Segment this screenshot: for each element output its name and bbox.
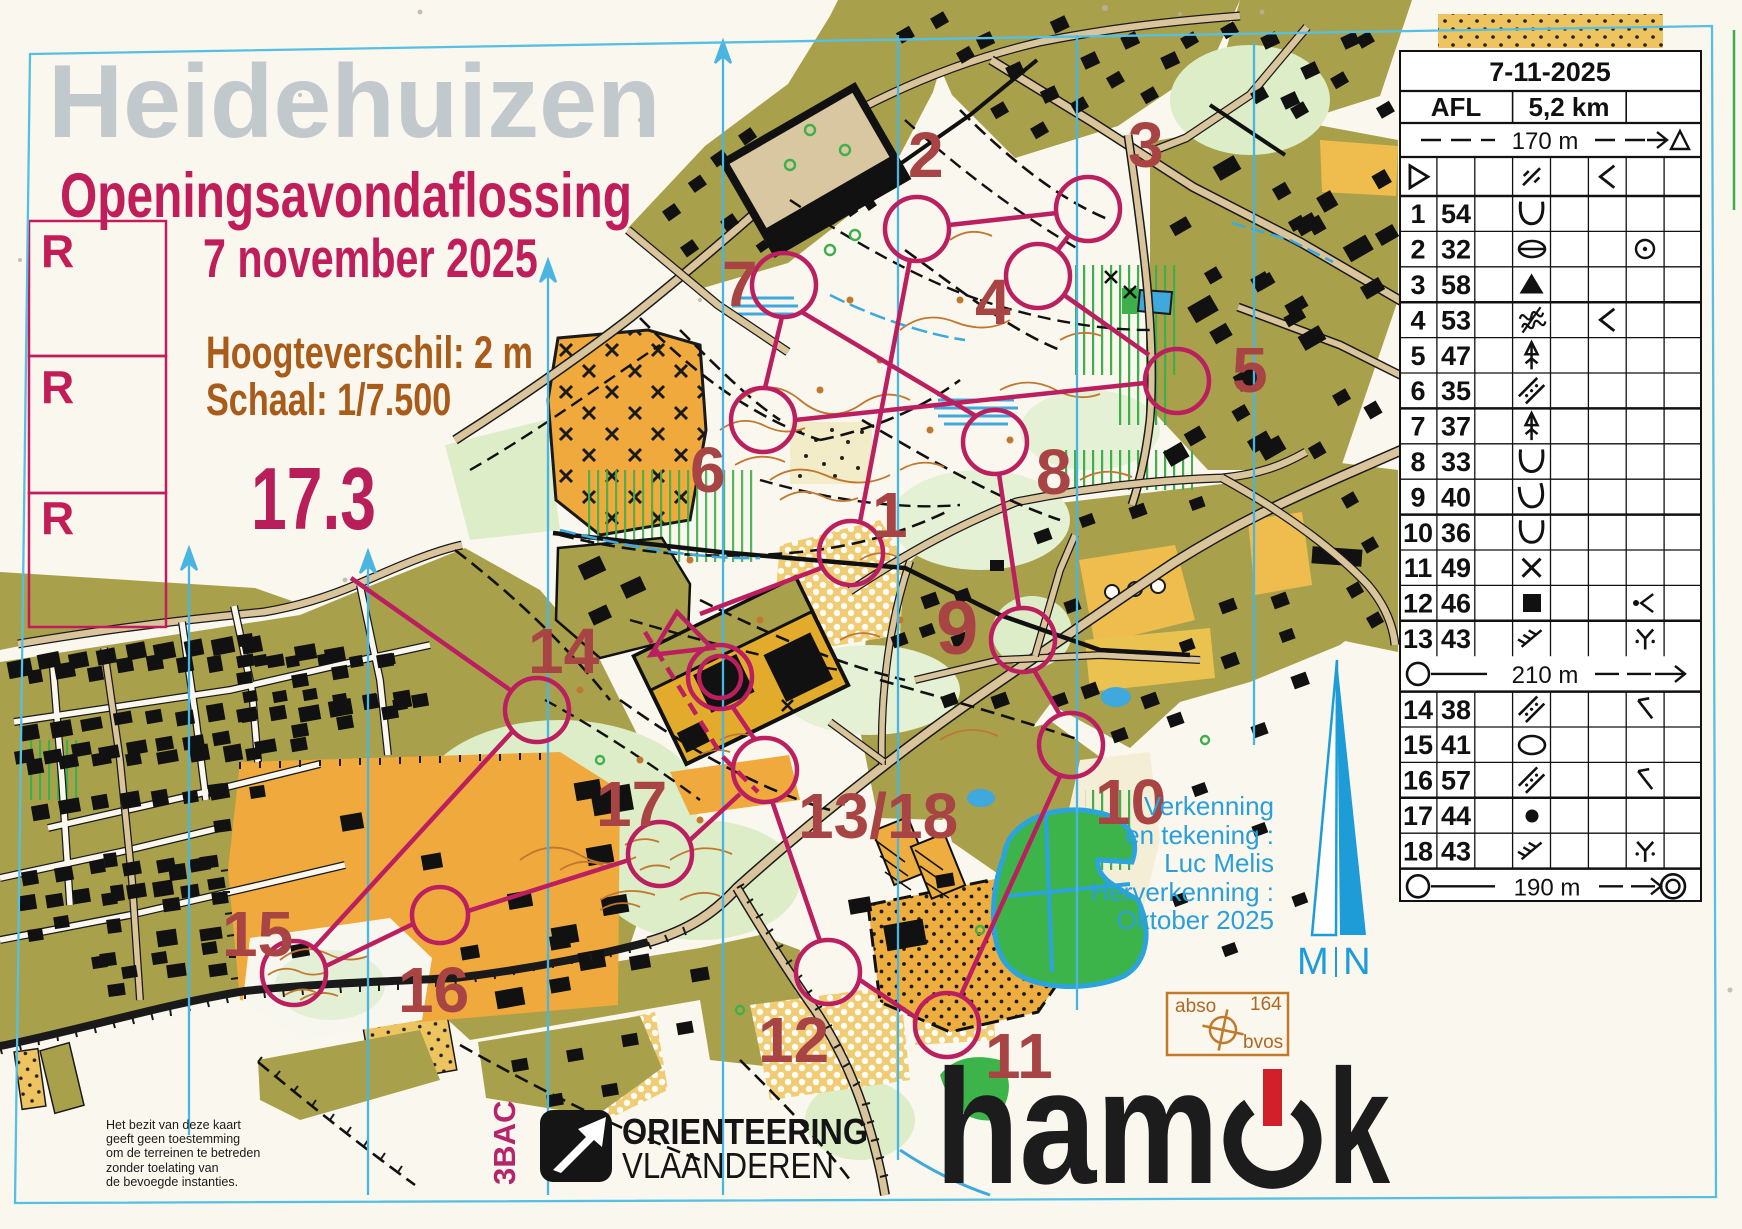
svg-text:abso: abso <box>1175 996 1216 1017</box>
svg-text:bvos: bvos <box>1243 1032 1283 1053</box>
svg-text:VLAANDEREN: VLAANDEREN <box>622 1145 834 1186</box>
svg-text:164: 164 <box>1250 994 1282 1015</box>
svg-text:k: k <box>1328 1035 1390 1218</box>
svg-text:ham: ham <box>935 1035 1219 1218</box>
